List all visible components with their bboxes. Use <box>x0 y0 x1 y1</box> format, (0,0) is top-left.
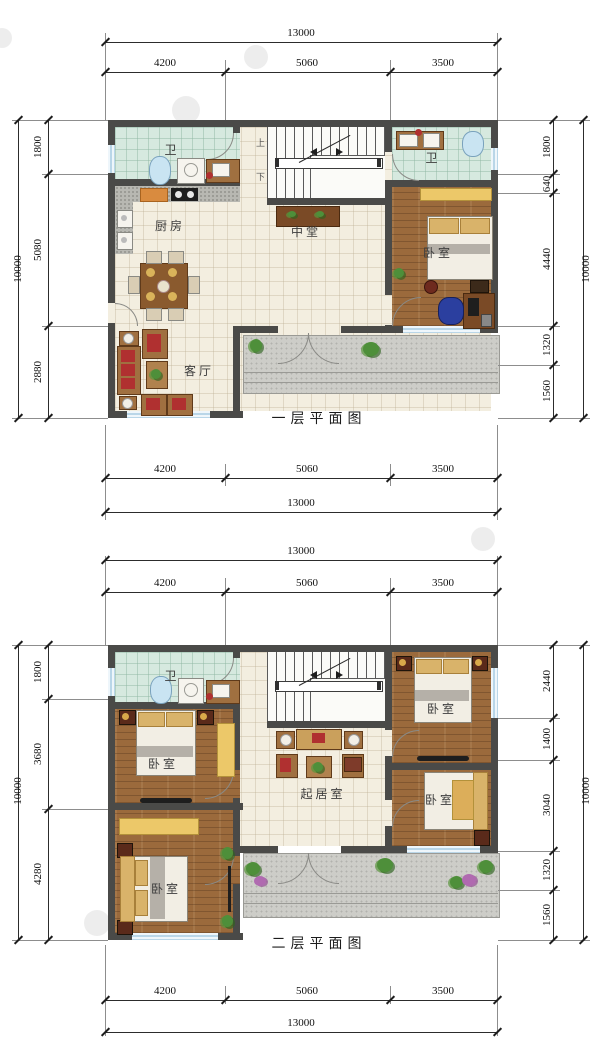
wall <box>385 127 392 152</box>
pillow <box>166 712 193 727</box>
pillow <box>416 659 442 674</box>
window <box>491 148 498 170</box>
decor-plant-red <box>206 172 213 179</box>
bed-runner <box>137 746 193 757</box>
dim-value: 1800 <box>540 127 554 167</box>
dim-line <box>105 478 498 479</box>
extension-line <box>42 174 108 175</box>
wall <box>267 721 392 728</box>
dining-chair <box>188 276 200 294</box>
dim-value: 2440 <box>540 661 554 701</box>
bush <box>246 862 260 875</box>
extension-line <box>105 425 106 520</box>
extension-line <box>105 556 106 645</box>
floor2-caption: 二层平面图 <box>239 937 399 952</box>
sink <box>399 134 418 147</box>
porch-step-line <box>243 372 498 373</box>
stair-arrow-head <box>336 671 343 679</box>
dim-line <box>105 560 498 561</box>
dim-value: 1320 <box>540 325 554 365</box>
toilet <box>149 156 171 185</box>
potted-plant <box>222 847 233 859</box>
room-label-bedroom-sw: 卧室 <box>146 882 186 896</box>
dim-value: 1800 <box>31 652 45 692</box>
lamp <box>123 333 134 344</box>
dim-value: 5060 <box>277 462 337 476</box>
wall <box>392 180 498 187</box>
dining-chair <box>146 308 162 321</box>
pillow <box>138 712 165 727</box>
wall <box>233 326 278 333</box>
armchair-cushion <box>172 398 186 410</box>
speaker <box>474 830 490 846</box>
pc-tower <box>481 314 492 327</box>
room-label-bedroom-se: 卧室 <box>420 793 460 807</box>
room-label-bath-right: 卫 <box>413 151 453 165</box>
dim-value: 13000 <box>271 1016 331 1030</box>
extension-line <box>42 326 108 327</box>
floor-plan-sheet: 13000 4200 5060 3500 上 下 <box>0 0 600 1048</box>
wall <box>385 756 392 800</box>
armchair-cushion <box>280 758 291 772</box>
wall <box>108 645 498 652</box>
dim-value: 3500 <box>413 462 473 476</box>
table-plant <box>313 762 323 772</box>
extension-line <box>12 645 108 646</box>
dim-value: 1800 <box>31 127 45 167</box>
sink <box>212 684 230 698</box>
plate <box>168 268 177 277</box>
dim-value: 4280 <box>31 854 45 894</box>
closet <box>420 188 492 201</box>
wall <box>385 180 392 198</box>
lamp <box>122 398 133 409</box>
washer-door <box>184 683 198 697</box>
dim-value: 3500 <box>413 576 473 590</box>
pillow <box>460 218 490 234</box>
dim-value: 1560 <box>540 371 554 411</box>
altar-table <box>276 206 340 227</box>
sink-drain <box>121 215 127 221</box>
dim-line <box>105 72 498 73</box>
wall <box>233 652 240 658</box>
plate <box>146 268 155 277</box>
speaker <box>424 280 438 294</box>
stair-rail-cap <box>377 681 381 690</box>
room-label-kitchen: 厨房 <box>140 219 200 233</box>
dim-value: 10000 <box>11 771 25 811</box>
wall <box>233 326 240 418</box>
extension-line <box>498 645 590 646</box>
room-label-bath-left: 卫 <box>152 143 192 157</box>
wall <box>233 884 240 940</box>
armchair-cushion <box>147 334 161 352</box>
wall <box>233 127 240 133</box>
pillow <box>443 659 469 674</box>
stair-rail <box>275 681 383 692</box>
watermark-circle <box>84 910 110 936</box>
extension-line <box>390 578 391 645</box>
dining-chair <box>168 251 184 264</box>
dim-value: 13000 <box>271 26 331 40</box>
pillow <box>429 218 459 234</box>
altar-plant <box>316 211 324 217</box>
room-label-bath: 卫 <box>152 669 192 683</box>
window <box>491 668 498 718</box>
bush <box>363 342 379 356</box>
dim-value: 640 <box>540 164 554 204</box>
toilet <box>462 131 484 157</box>
room-label-bedroom-nw: 卧室 <box>143 757 183 771</box>
dim-line <box>48 120 49 418</box>
stair-up-label: 上 <box>256 136 265 149</box>
dim-line <box>105 1032 498 1033</box>
watermark-circle <box>0 28 12 48</box>
tv-console <box>417 756 469 761</box>
dining-chair <box>146 251 162 264</box>
room-label-bedroom: 卧室 <box>418 246 458 260</box>
window <box>132 933 218 940</box>
door-opening <box>108 303 115 323</box>
nightstand <box>470 280 489 293</box>
dim-value: 2880 <box>31 352 45 392</box>
balcony-step-line <box>243 903 498 904</box>
dim-value: 5060 <box>277 984 337 998</box>
bush <box>450 876 463 888</box>
office-chair <box>438 297 464 325</box>
lamp <box>348 734 360 746</box>
washer-door <box>184 163 198 177</box>
watermark-circle <box>244 45 268 69</box>
center-dish <box>157 280 170 293</box>
dim-line <box>105 42 498 43</box>
cutting-board <box>140 188 168 202</box>
extension-line <box>42 699 108 700</box>
dining-chair <box>168 308 184 321</box>
dining-chair <box>128 276 140 294</box>
nightstand-detail <box>122 713 129 720</box>
flowers <box>254 876 266 886</box>
dim-value: 5060 <box>277 56 337 70</box>
extension-line <box>12 120 108 121</box>
watermark-circle <box>471 527 495 551</box>
stair-arrow-head <box>336 148 343 156</box>
dim-value: 13000 <box>271 544 331 558</box>
stair-rail-cap <box>275 158 279 167</box>
sofa-cushion <box>121 364 135 376</box>
dim-value: 13000 <box>271 496 331 510</box>
dim-line <box>105 1000 498 1001</box>
potted-plant <box>222 915 233 927</box>
extension-line <box>12 418 108 419</box>
stair-arrow-head <box>310 148 317 156</box>
room-label-hall: 中堂 <box>276 225 336 239</box>
dim-value: 1560 <box>540 895 554 935</box>
dim-value: 10000 <box>11 249 25 289</box>
bush <box>377 858 393 872</box>
stair-arrow-head <box>310 671 317 679</box>
dim-line <box>105 592 498 593</box>
nightstand-detail <box>200 713 207 720</box>
tv-console <box>140 798 192 803</box>
wall <box>108 803 243 810</box>
burner <box>187 191 194 198</box>
dim-value: 1320 <box>540 850 554 890</box>
dim-value: 3500 <box>413 56 473 70</box>
bush <box>479 860 493 873</box>
extension-line <box>498 418 590 419</box>
dim-value: 10000 <box>579 249 593 289</box>
dim-value: 1400 <box>540 719 554 759</box>
plate <box>168 292 177 301</box>
bed-runner <box>415 690 469 701</box>
headboard <box>120 856 135 922</box>
table-plant <box>151 369 161 379</box>
extension-line <box>497 556 498 645</box>
dim-value: 4200 <box>135 462 195 476</box>
speaker <box>117 920 133 935</box>
altar-plant <box>288 211 296 217</box>
porch-step-line <box>243 382 498 383</box>
room-label-bedroom-ne: 卧室 <box>422 702 462 716</box>
dim-value: 3500 <box>413 984 473 998</box>
dim-value: 3680 <box>31 734 45 774</box>
dim-value: 5060 <box>277 576 337 590</box>
wall <box>108 120 498 127</box>
armchair-cushion <box>146 398 160 410</box>
flowers <box>462 874 476 886</box>
speaker-detail <box>475 659 482 666</box>
plate <box>146 292 155 301</box>
extension-line <box>12 940 108 941</box>
dim-value: 4200 <box>135 984 195 998</box>
extension-line <box>498 940 590 941</box>
wall <box>385 645 392 730</box>
wall <box>267 198 385 205</box>
decor-plant-red <box>206 693 213 700</box>
monitor <box>468 298 479 316</box>
sink-drain <box>121 237 127 243</box>
extension-line <box>225 578 226 645</box>
sink <box>212 163 230 177</box>
stair-rail-cap <box>377 158 381 167</box>
dim-value: 5080 <box>31 230 45 270</box>
cabinet <box>344 757 362 772</box>
extension-line <box>498 120 590 121</box>
extension-line <box>497 945 498 1036</box>
wall <box>385 198 392 295</box>
room-label-living2: 起居室 <box>283 787 363 801</box>
curtain-line <box>228 866 231 912</box>
dim-value: 10000 <box>579 771 593 811</box>
extension-line <box>497 33 498 120</box>
extension-line <box>105 33 106 120</box>
window <box>108 668 115 696</box>
room-label-living: 客厅 <box>169 364 229 378</box>
decor-plant-red <box>415 129 422 136</box>
sink <box>423 133 440 148</box>
extension-line <box>105 945 106 1036</box>
extension-line <box>42 809 108 810</box>
sofa-cushion <box>312 733 325 743</box>
window <box>407 846 480 853</box>
wall <box>392 763 498 770</box>
wardrobe <box>217 723 235 777</box>
stair-rail-cap <box>275 681 279 690</box>
extension-line <box>497 425 498 520</box>
dim-value: 4200 <box>135 576 195 590</box>
potted-plant <box>394 268 404 278</box>
wall <box>233 846 278 853</box>
stair-rail <box>275 158 383 169</box>
window <box>108 145 115 173</box>
dim-value: 4200 <box>135 56 195 70</box>
burner <box>175 191 182 198</box>
lamp <box>280 734 292 746</box>
floor1-caption: 一层平面图 <box>239 412 399 427</box>
speaker-detail <box>399 659 406 666</box>
wardrobe <box>119 818 199 835</box>
stair-down-label: 下 <box>256 170 265 183</box>
dim-value: 4440 <box>540 239 554 279</box>
sofa-cushion <box>121 378 135 389</box>
potted-plant <box>250 339 262 352</box>
dim-line <box>48 645 49 940</box>
dim-line <box>105 512 498 513</box>
headboard <box>473 772 488 830</box>
dim-value: 3040 <box>540 785 554 825</box>
balcony-step-line <box>243 893 498 894</box>
sofa-cushion <box>121 350 135 362</box>
